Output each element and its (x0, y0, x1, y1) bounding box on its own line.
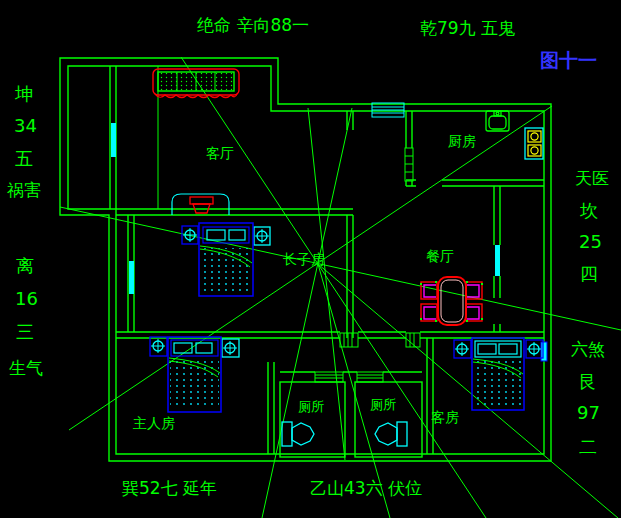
dining-chair (466, 281, 483, 299)
left-label-san: 三 (16, 322, 34, 342)
living-left-window (111, 123, 116, 157)
right-label-25: 25 (579, 232, 602, 252)
toilet-fixture-left (282, 422, 314, 446)
room-label-dining: 餐厅 (426, 249, 454, 264)
bed-master (150, 337, 239, 412)
dining-chair (420, 304, 437, 322)
right-label-97: 97 (577, 403, 600, 423)
kitchen-sink (486, 111, 509, 131)
nightstand (254, 227, 270, 245)
living-divider-wall (116, 209, 353, 215)
kitchen-bottom-wall (406, 180, 544, 186)
right-label-gen: 艮 (579, 372, 597, 392)
floor-plan-canvas: 绝命 辛向88一 乾79九 五鬼 图十一 巽52七 延年 乙山43六 伏位 坤 … (0, 0, 621, 518)
right-label-si: 四 (580, 264, 598, 284)
eldest-left-window (129, 261, 134, 294)
room-label-master: 主人房 (133, 416, 175, 431)
annotation-top-right: 乾79九 五鬼 (420, 19, 515, 38)
stove (525, 128, 543, 159)
nightstand (454, 340, 471, 358)
left-label-34: 34 (14, 116, 37, 136)
room-label-living: 客厅 (206, 146, 234, 161)
fengshui-sector-lines (60, 57, 621, 518)
corridor-louver-window-left (340, 333, 358, 347)
tv-cabinet (172, 194, 229, 215)
toilet-right-room (355, 382, 422, 457)
room-label-guest: 客房 (431, 410, 459, 425)
nightstand (222, 339, 239, 357)
nightstand (182, 226, 198, 244)
kitchen-left-window (405, 148, 413, 181)
right-label-kan: 坎 (580, 201, 598, 221)
master-right-wall (268, 362, 274, 454)
nightstand (150, 337, 167, 356)
toilet-right-louver-window (357, 372, 383, 382)
left-label-huohai: 祸害 (7, 181, 41, 200)
annotation-bottom-left: 巽52七 延年 (122, 479, 217, 498)
figure-number: 图十一 (540, 50, 597, 71)
right-label-er: 二 (579, 437, 597, 457)
left-label-shengqi: 生气 (9, 359, 43, 378)
dining-left-wall (347, 111, 353, 338)
bed-eldest-son (182, 223, 270, 296)
left-label-li: 离 (16, 256, 34, 276)
left-label-kun: 坤 (15, 84, 33, 104)
room-label-toilet-left: 厕所 (298, 400, 324, 414)
dining-set (420, 277, 483, 325)
nightstand (526, 340, 543, 358)
left-label-wu: 五 (15, 149, 33, 169)
dining-chair (420, 281, 437, 299)
top-hatched-window (372, 103, 404, 117)
toilet-fixture-right (375, 422, 407, 446)
right-label-liusha: 六煞 (571, 340, 605, 359)
room-label-eldest-son: 长子房 (283, 252, 325, 267)
sofa (153, 69, 239, 98)
toilet-left-louver-window (315, 372, 343, 382)
dining-table (438, 277, 466, 325)
room-label-toilet-right: 厕所 (370, 398, 396, 412)
louver-windows (315, 148, 420, 382)
annotation-bottom-right: 乙山43六 伏位 (310, 479, 422, 498)
bed-guest (454, 338, 543, 410)
left-label-16: 16 (15, 289, 38, 309)
dining-right-window (495, 245, 500, 276)
right-label-tianyi: 天医 (575, 169, 609, 188)
dining-chair (466, 304, 483, 322)
annotation-top-left: 绝命 辛向88一 (197, 16, 309, 35)
room-label-kitchen: 厨房 (448, 134, 476, 149)
windows (111, 103, 547, 361)
